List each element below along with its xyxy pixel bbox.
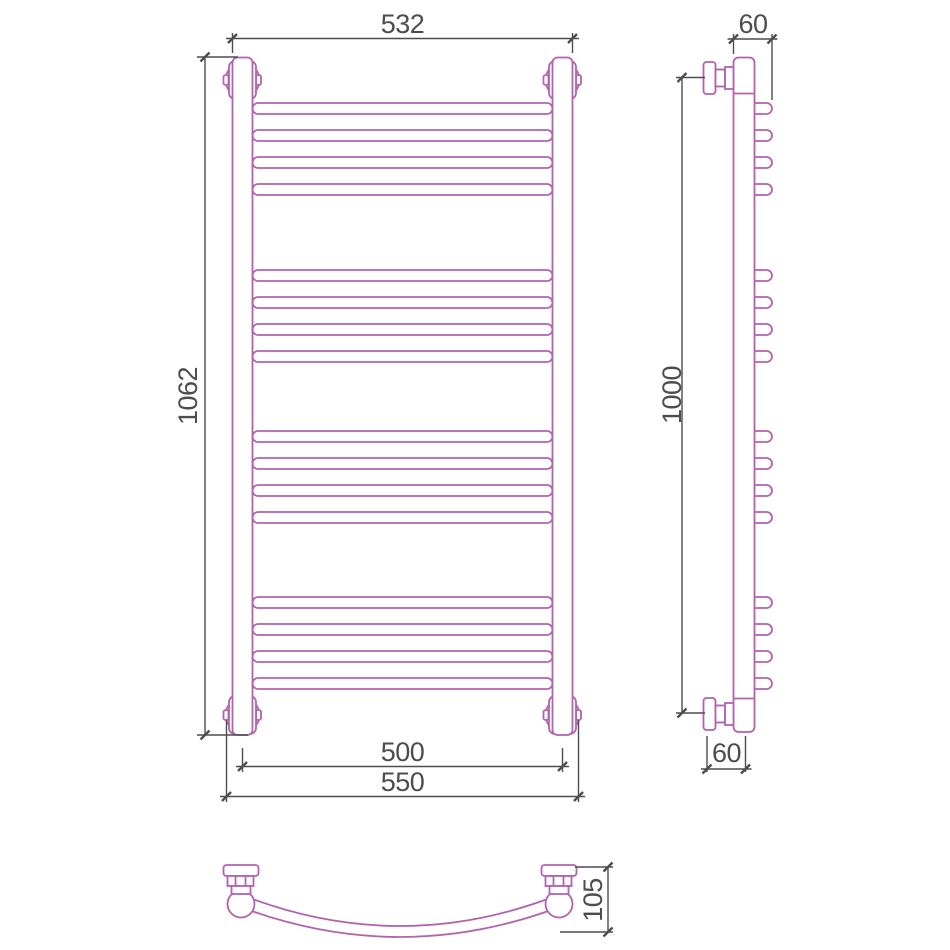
rung	[253, 512, 553, 523]
bracket-flange	[224, 865, 259, 876]
rung	[253, 351, 553, 362]
rung	[253, 431, 553, 442]
bracket-nut	[546, 876, 572, 886]
rung	[253, 485, 553, 496]
rung	[253, 624, 553, 635]
bracket-stem	[232, 886, 251, 894]
bracket-stem	[716, 70, 726, 87]
rung	[253, 184, 553, 195]
towel-warmer-drawing: 532 1062 500 550	[0, 0, 950, 950]
rung	[253, 270, 553, 281]
rung	[253, 678, 553, 689]
bracket-nut	[228, 876, 254, 886]
technical-drawing-page: 532 1062 500 550	[0, 0, 950, 950]
rung-group-4	[253, 597, 553, 689]
bracket-screw	[224, 75, 229, 85]
dimension-front-top-width: 532	[226, 9, 579, 53]
dimension-side-bottom-depth: 60	[701, 736, 752, 774]
bracket-stem	[550, 886, 569, 894]
bracket-flange	[704, 698, 716, 730]
dim-label-105: 105	[578, 878, 608, 922]
dim-label-60-bottom: 60	[712, 738, 741, 768]
side-bracket-bottom	[704, 698, 734, 730]
rung	[253, 651, 553, 662]
rung-group-2	[253, 270, 553, 362]
rung-group-1	[253, 103, 553, 195]
bracket-screw	[544, 710, 549, 720]
curved-rung-outer	[246, 909, 554, 937]
dim-label-550: 550	[381, 767, 425, 797]
bracket-flange	[704, 62, 716, 94]
rung	[253, 130, 553, 141]
dimension-side-height: 1000	[657, 73, 705, 718]
dim-label-532: 532	[381, 9, 425, 39]
bracket-stem	[725, 703, 734, 725]
post-right	[553, 58, 573, 736]
plan-bracket-left	[224, 865, 259, 894]
bracket-screw	[224, 710, 229, 720]
post-left	[233, 58, 253, 736]
rung-group-3	[253, 431, 553, 523]
dim-label-1062: 1062	[173, 367, 203, 425]
rung	[253, 324, 553, 335]
side-bracket-top	[704, 62, 734, 94]
post-side	[734, 58, 755, 733]
side-view: 60 1000 60	[657, 9, 778, 774]
bracket-flange	[542, 865, 577, 876]
plan-view: 105	[224, 863, 614, 938]
bracket-stem	[716, 706, 726, 723]
dim-label-1000: 1000	[657, 366, 687, 424]
rung	[253, 597, 553, 608]
bracket-screw	[544, 75, 549, 85]
rung	[253, 458, 553, 469]
rung	[253, 103, 553, 114]
dim-label-500: 500	[381, 737, 425, 767]
curved-rung-inner	[247, 897, 553, 926]
plan-bracket-right	[542, 865, 577, 894]
bracket-stem	[725, 67, 734, 89]
dim-label-60-top: 60	[738, 9, 767, 39]
rung	[253, 157, 553, 168]
front-view: 532 1062 500 550	[173, 9, 585, 802]
rung	[253, 297, 553, 308]
